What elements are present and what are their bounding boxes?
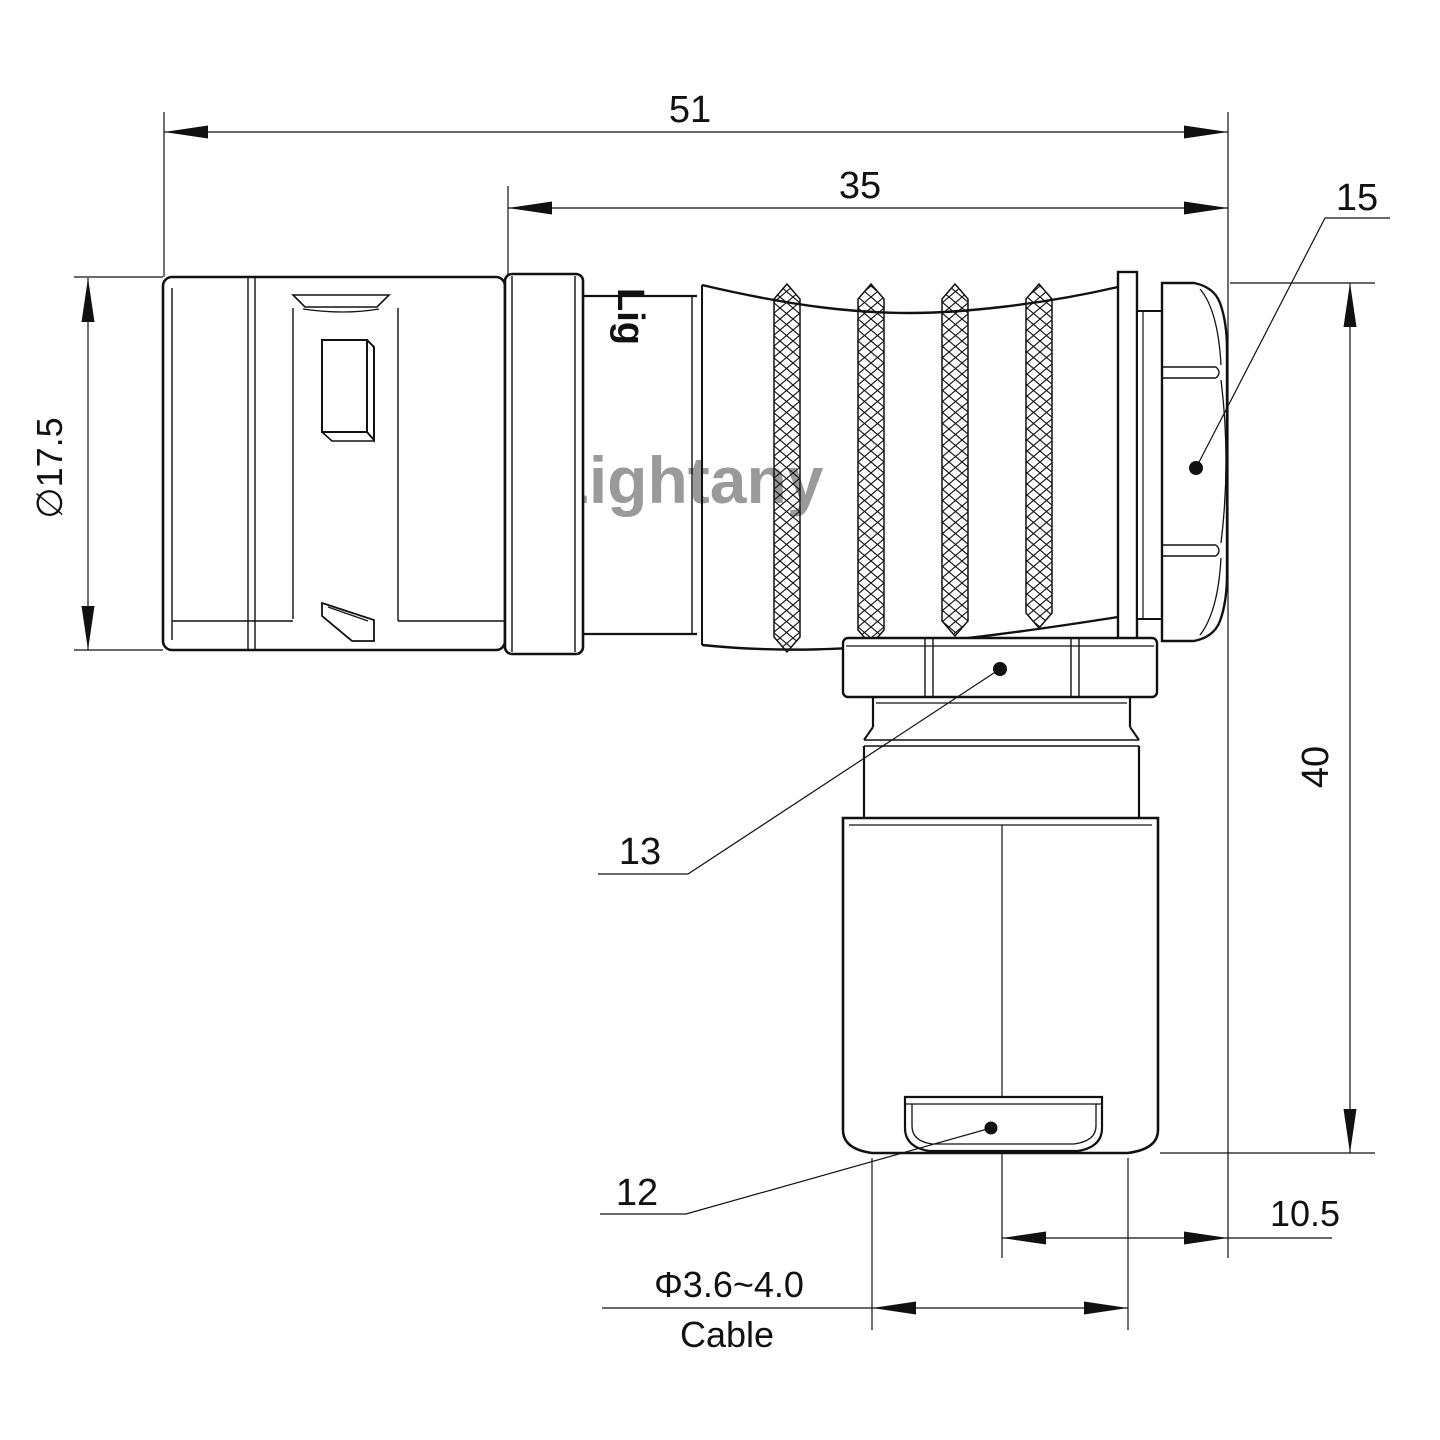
ext-lines-diameter xyxy=(74,277,163,650)
dim-label-cable-cap: 12 xyxy=(616,1172,658,1214)
knurl-band-2 xyxy=(858,284,884,645)
dim-label-overall-height: 40 xyxy=(1295,746,1337,788)
dim-label-back-nut: 15 xyxy=(1336,177,1378,219)
dim-label-grip-length: 35 xyxy=(839,165,881,207)
front-shell xyxy=(163,277,505,650)
dim-label-cable-word: Cable xyxy=(680,1314,774,1355)
knurl-band-4 xyxy=(1026,284,1052,628)
elbow-neck xyxy=(864,697,1139,818)
dim-label-front-diameter: ∅17.5 xyxy=(29,417,70,518)
cable-entry-cap xyxy=(905,1097,1102,1151)
dim-label-overall-length: 51 xyxy=(669,89,711,131)
dim-label-cable-range: Φ3.6~4.0 xyxy=(654,1264,804,1305)
connector-body xyxy=(163,272,1227,1153)
technical-drawing-page: Lightany xyxy=(0,0,1440,1440)
knurl-band-1 xyxy=(774,284,800,652)
leader-dot-12 xyxy=(985,1122,998,1135)
rear-flange xyxy=(1118,272,1162,650)
leader-dot-15 xyxy=(1189,461,1203,475)
knurl-band-3 xyxy=(942,284,968,636)
leader-dot-13 xyxy=(993,662,1007,676)
collar xyxy=(505,274,583,654)
dim-label-axis-offset: 10.5 xyxy=(1270,1193,1340,1234)
body-engraving-text: Lig xyxy=(609,288,651,345)
bayonet-tab xyxy=(293,295,389,307)
connector-elbow-drawing: Lightany xyxy=(0,0,1440,1440)
dim-label-elbow-nut: 13 xyxy=(619,831,661,873)
